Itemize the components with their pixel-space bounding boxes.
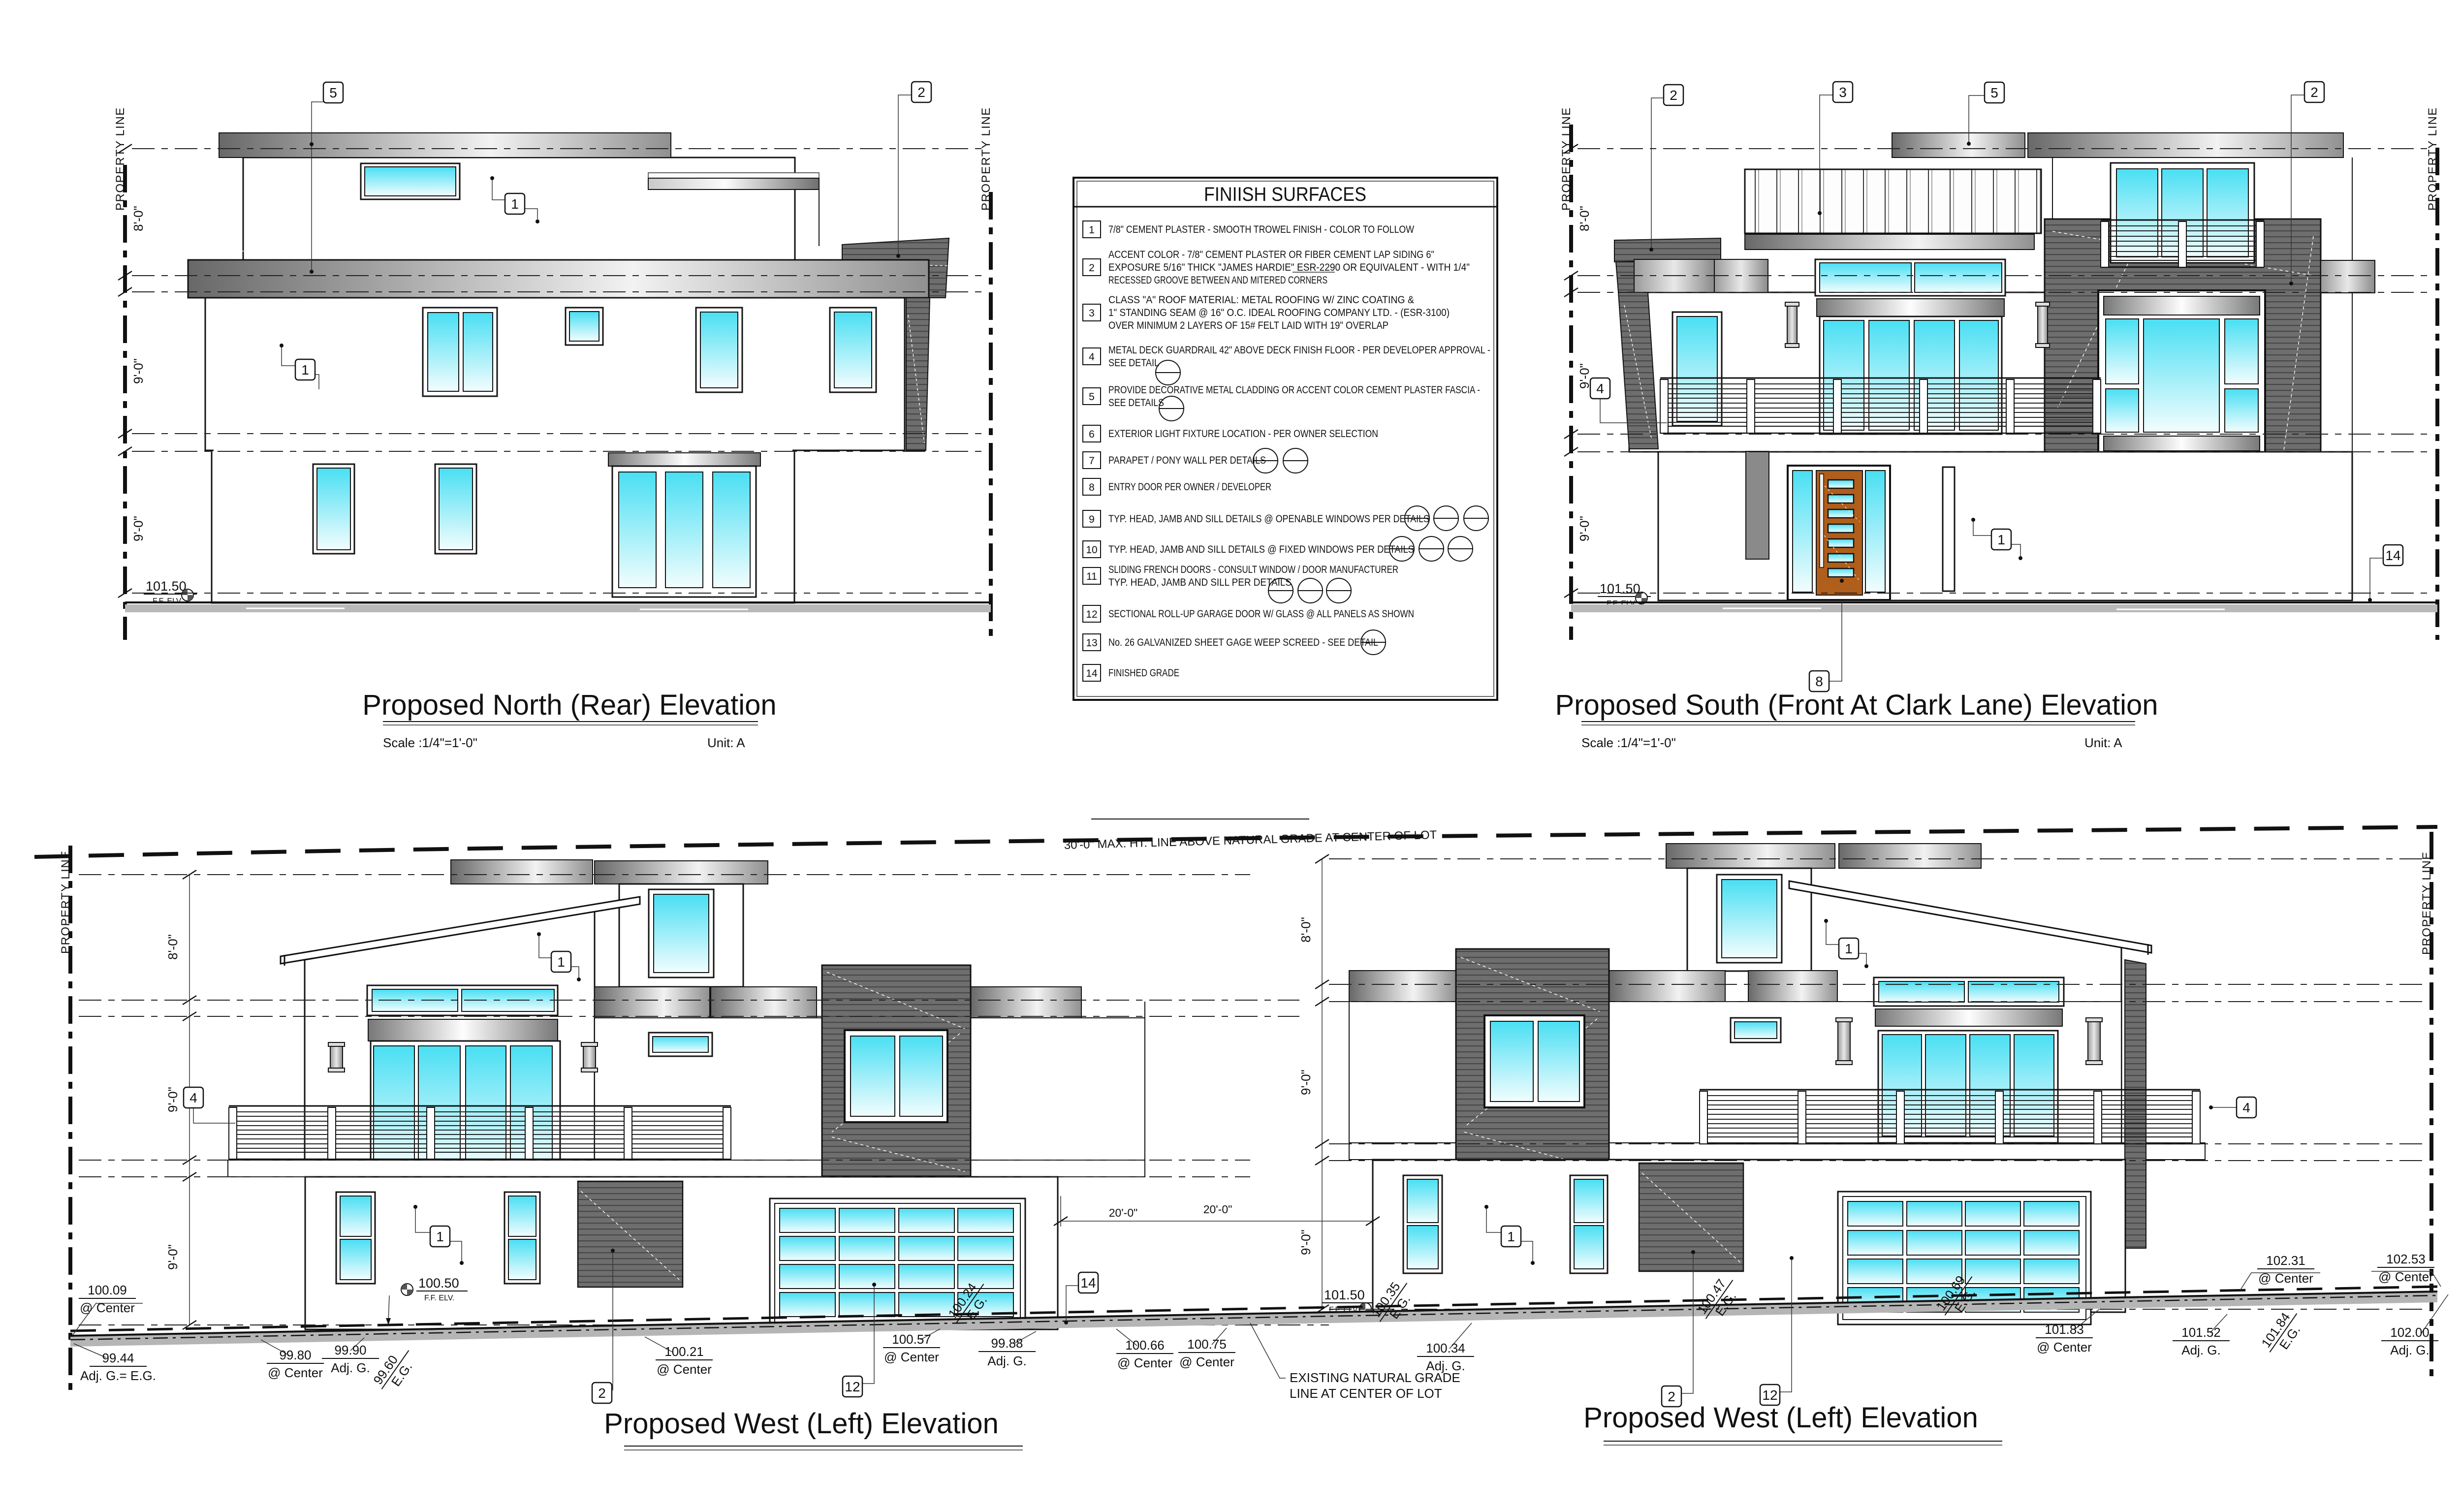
- svg-text:@ Center: @ Center: [884, 1350, 939, 1364]
- svg-text:PROPERTY LINE: PROPERTY LINE: [1560, 107, 1573, 211]
- svg-text:Adj. G.= E.G.: Adj. G.= E.G.: [80, 1368, 156, 1383]
- svg-text:@ Center: @ Center: [2037, 1340, 2092, 1354]
- svg-text:@ Center: @ Center: [2258, 1271, 2313, 1286]
- svg-text:7: 7: [1089, 455, 1095, 467]
- svg-text:13: 13: [1086, 637, 1097, 649]
- svg-text:5: 5: [1089, 391, 1095, 403]
- svg-text:@ Center: @ Center: [1117, 1355, 1172, 1370]
- svg-text:EXPOSURE 5/16" THICK "JAMES HA: EXPOSURE 5/16" THICK "JAMES HARDIE" ESR-…: [1108, 261, 1470, 273]
- svg-text:101.52: 101.52: [2181, 1325, 2221, 1340]
- svg-text:SEE DETAILS: SEE DETAILS: [1108, 397, 1164, 409]
- svg-text:1: 1: [1845, 941, 1853, 956]
- svg-text:8: 8: [1815, 674, 1823, 689]
- svg-text:101.50: 101.50: [146, 579, 187, 594]
- svg-text:5: 5: [1990, 85, 1998, 100]
- svg-text:5: 5: [329, 85, 337, 100]
- svg-text:101.83: 101.83: [2045, 1322, 2084, 1337]
- svg-text:100.34: 100.34: [1426, 1341, 1465, 1355]
- svg-text:1: 1: [1997, 532, 2005, 547]
- svg-text:8'-0": 8'-0": [1298, 917, 1313, 943]
- svg-text:RECESSED GROOVE BETWEEN AND MI: RECESSED GROOVE BETWEEN AND MITERED CORN…: [1108, 274, 1327, 286]
- svg-text:PROPERTY LINE: PROPERTY LINE: [2426, 107, 2439, 211]
- svg-text:9: 9: [1089, 514, 1095, 525]
- svg-text:102.53: 102.53: [2386, 1252, 2426, 1266]
- svg-text:100.75: 100.75: [1187, 1337, 1227, 1352]
- svg-text:9'-0": 9'-0": [131, 516, 146, 541]
- svg-text:EXISTING NATURAL GRADE: EXISTING NATURAL GRADE: [1290, 1370, 1460, 1385]
- svg-text:100.09: 100.09: [88, 1283, 127, 1297]
- svg-text:2: 2: [2310, 85, 2318, 100]
- svg-text:102.31: 102.31: [2266, 1253, 2305, 1268]
- svg-text:1: 1: [557, 954, 565, 970]
- svg-text:9'-0": 9'-0": [165, 1244, 180, 1270]
- svg-text:EXTERIOR LIGHT FIXTURE LOCATIO: EXTERIOR LIGHT FIXTURE LOCATION - PER OW…: [1108, 428, 1378, 440]
- svg-text:Proposed West (Left) Elevation: Proposed West (Left) Elevation: [1583, 1402, 1978, 1434]
- svg-text:4: 4: [2242, 1100, 2250, 1115]
- svg-text:2: 2: [1670, 88, 1677, 103]
- svg-text:Adj. G.: Adj. G.: [2181, 1343, 2220, 1357]
- svg-text:METAL DECK GUARDRAIL 42" ABOVE: METAL DECK GUARDRAIL 42" ABOVE DECK FINI…: [1108, 344, 1490, 356]
- svg-text:14: 14: [2385, 548, 2400, 563]
- svg-text:F.F. ELV.: F.F. ELV.: [153, 597, 183, 605]
- svg-text:100.21: 100.21: [664, 1344, 704, 1359]
- svg-text:Scale :1/4"=1'-0": Scale :1/4"=1'-0": [1581, 735, 1676, 750]
- svg-text:Unit: A: Unit: A: [707, 735, 745, 750]
- svg-text:1: 1: [1507, 1229, 1515, 1244]
- svg-text:F.F. ELV.: F.F. ELV.: [424, 1294, 454, 1302]
- svg-text:11: 11: [1086, 571, 1097, 582]
- svg-text:1: 1: [1089, 224, 1095, 236]
- svg-text:100.57: 100.57: [892, 1332, 931, 1347]
- svg-text:99.88: 99.88: [991, 1336, 1023, 1351]
- svg-text:TYP. HEAD, JAMB AND SILL DETAI: TYP. HEAD, JAMB AND SILL DETAILS @ FIXED…: [1108, 543, 1414, 555]
- svg-text:FINISHED GRADE: FINISHED GRADE: [1108, 667, 1179, 679]
- svg-text:@ Center: @ Center: [2378, 1269, 2433, 1284]
- svg-text:101.50: 101.50: [1324, 1288, 1365, 1302]
- svg-text:14: 14: [1086, 668, 1098, 679]
- svg-text:7/8" CEMENT PLASTER - SMOOTH T: 7/8" CEMENT PLASTER - SMOOTH TROWEL FINI…: [1108, 223, 1415, 235]
- svg-text:1: 1: [301, 362, 309, 378]
- svg-text:Proposed West (Left) Elevation: Proposed West (Left) Elevation: [604, 1408, 999, 1440]
- svg-text:8'-0": 8'-0": [131, 206, 146, 231]
- svg-text:PROPERTY LINE: PROPERTY LINE: [2420, 851, 2433, 955]
- svg-text:10: 10: [1086, 544, 1097, 556]
- svg-text:100.66: 100.66: [1125, 1338, 1165, 1353]
- svg-text:9'-0": 9'-0": [1577, 363, 1592, 389]
- svg-text:Proposed South (Front At Clark: Proposed South (Front At Clark Lane) Ele…: [1555, 689, 2158, 721]
- svg-text:9'-0": 9'-0": [1577, 516, 1592, 541]
- svg-text:20'-0": 20'-0": [1203, 1203, 1232, 1216]
- svg-text:100.50: 100.50: [418, 1276, 459, 1291]
- svg-text:101.50: 101.50: [1600, 581, 1641, 596]
- svg-text:20'-0": 20'-0": [1109, 1206, 1138, 1219]
- svg-text:Proposed North (Rear) Elevatio: Proposed North (Rear) Elevation: [362, 689, 776, 721]
- svg-text:12: 12: [1762, 1387, 1777, 1403]
- svg-text:OVER MINIMUM 2 LAYERS OF 15# F: OVER MINIMUM 2 LAYERS OF 15# FELT LAID W…: [1108, 319, 1388, 331]
- svg-text:8: 8: [1089, 482, 1095, 493]
- svg-text:1: 1: [436, 1229, 444, 1244]
- svg-text:@ Center: @ Center: [657, 1362, 712, 1377]
- svg-text:@ Center: @ Center: [80, 1300, 135, 1315]
- svg-text:2: 2: [598, 1386, 606, 1401]
- svg-text:3: 3: [1089, 308, 1095, 319]
- svg-text:PROPERTY LINE: PROPERTY LINE: [979, 107, 993, 211]
- svg-text:PROVIDE DECORATIVE METAL CLADD: PROVIDE DECORATIVE METAL CLADDING OR ACC…: [1108, 384, 1480, 396]
- svg-text:9'-0": 9'-0": [1298, 1070, 1313, 1095]
- svg-text:CLASS "A" ROOF MATERIAL: METAL: CLASS "A" ROOF MATERIAL: METAL ROOFING W…: [1108, 294, 1414, 306]
- svg-text:3: 3: [1839, 85, 1847, 100]
- svg-text:8'-0": 8'-0": [1577, 206, 1592, 231]
- svg-text:1" STANDING SEAM @ 16" O.C. ID: 1" STANDING SEAM @ 16" O.C. IDEAL ROOFIN…: [1108, 307, 1450, 318]
- svg-text:9'-0": 9'-0": [131, 358, 146, 384]
- svg-text:1: 1: [511, 196, 519, 212]
- svg-text:@ Center: @ Center: [268, 1365, 323, 1380]
- svg-text:2: 2: [917, 85, 925, 100]
- svg-text:2: 2: [1089, 262, 1095, 274]
- svg-text:Adj. G.: Adj. G.: [987, 1354, 1026, 1368]
- svg-text:Scale :1/4"=1'-0": Scale :1/4"=1'-0": [383, 735, 477, 750]
- svg-text:8'-0": 8'-0": [165, 934, 180, 960]
- svg-text:14: 14: [1080, 1275, 1096, 1291]
- svg-text:6: 6: [1089, 429, 1095, 440]
- svg-text:99.90: 99.90: [334, 1343, 366, 1357]
- svg-text:Adj. G.: Adj. G.: [331, 1360, 370, 1375]
- svg-text:4: 4: [189, 1090, 197, 1105]
- svg-text:TYP. HEAD, JAMB AND SILL PER D: TYP. HEAD, JAMB AND SILL PER DETAILS: [1108, 576, 1292, 588]
- svg-text:SECTIONAL ROLL-UP GARAGE DOOR: SECTIONAL ROLL-UP GARAGE DOOR W/ GLASS @…: [1108, 608, 1414, 620]
- svg-text:LINE AT CENTER OF LOT: LINE AT CENTER OF LOT: [1290, 1386, 1442, 1401]
- svg-text:No. 26 GALVANIZED SHEET GAGE W: No. 26 GALVANIZED SHEET GAGE WEEP SCREED…: [1108, 636, 1378, 648]
- svg-text:12: 12: [1086, 609, 1097, 620]
- svg-text:Adj. G.: Adj. G.: [2390, 1343, 2429, 1357]
- svg-text:PARAPET / PONY WALL PER DETAIL: PARAPET / PONY WALL PER DETAILS: [1108, 454, 1266, 466]
- svg-text:PROPERTY LINE: PROPERTY LINE: [59, 850, 72, 954]
- svg-text:12: 12: [845, 1379, 860, 1394]
- svg-text:ENTRY DOOR PER OWNER / DEVELOP: ENTRY DOOR PER OWNER / DEVELOPER: [1108, 481, 1271, 493]
- svg-text:4: 4: [1596, 381, 1604, 396]
- svg-text:PROPERTY LINE: PROPERTY LINE: [114, 107, 127, 211]
- svg-text:9'-0": 9'-0": [1298, 1229, 1313, 1255]
- svg-text:99.80: 99.80: [279, 1348, 311, 1362]
- svg-text:@ Center: @ Center: [1179, 1354, 1234, 1369]
- svg-text:102.00: 102.00: [2390, 1325, 2429, 1340]
- svg-text:TYP. HEAD, JAMB AND SILL DETAI: TYP. HEAD, JAMB AND SILL DETAILS @ OPENA…: [1108, 513, 1429, 525]
- svg-text:99.44: 99.44: [102, 1351, 134, 1365]
- svg-text:4: 4: [1089, 351, 1095, 363]
- svg-text:9'-0": 9'-0": [165, 1087, 180, 1112]
- svg-text:SEE DETAIL: SEE DETAIL: [1108, 357, 1159, 369]
- svg-text:FINIISH SURFACES: FINIISH SURFACES: [1204, 184, 1366, 205]
- svg-text:ACCENT COLOR - 7/8" CEMENT PLA: ACCENT COLOR - 7/8" CEMENT PLASTER OR FI…: [1108, 249, 1434, 260]
- svg-text:Unit: A: Unit: A: [2084, 735, 2122, 750]
- svg-text:SLIDING FRENCH DOORS - CONSULT: SLIDING FRENCH DOORS - CONSULT WINDOW / …: [1108, 564, 1398, 575]
